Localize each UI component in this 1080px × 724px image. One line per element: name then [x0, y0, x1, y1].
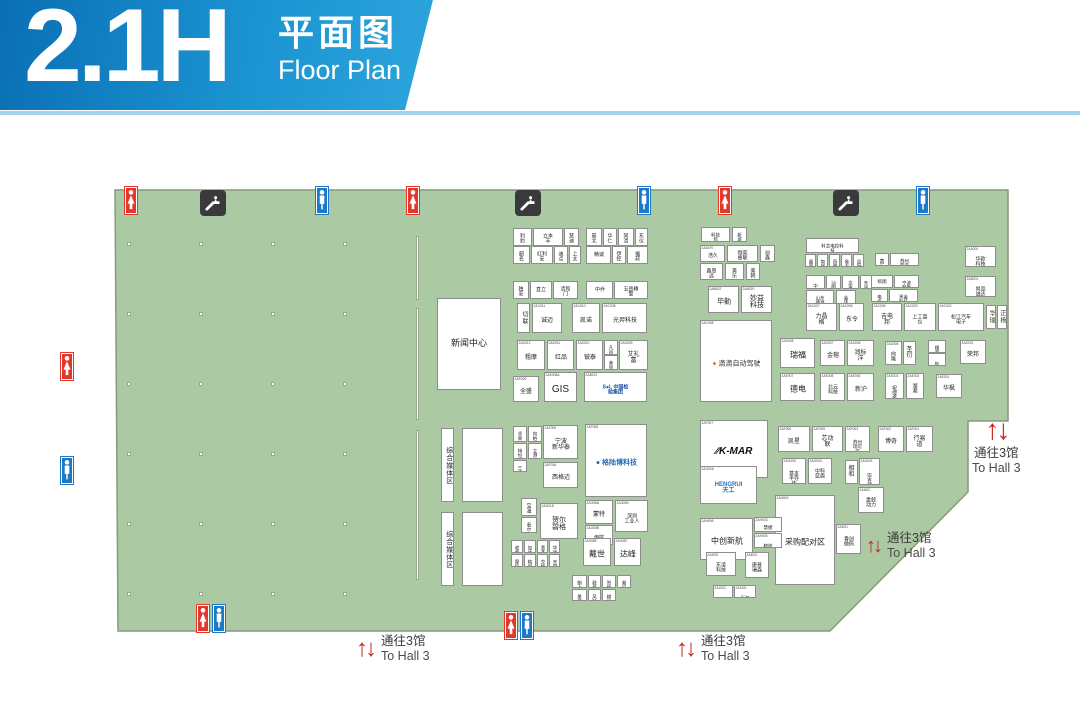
booth-2ae005: 2AE005新沪: [847, 373, 874, 401]
booth-name: 毕勤: [709, 292, 738, 312]
pillar: [127, 312, 131, 316]
booth-code: 2AC008: [603, 304, 627, 307]
booth-name: 光羿科技: [603, 309, 646, 332]
booth-name: 向柏: [529, 427, 541, 442]
booth-code: 2AB001: [966, 277, 982, 280]
booth-name: 懿扬: [589, 576, 600, 588]
booth-name: 诚迈: [533, 309, 561, 332]
booth: 穗邦: [928, 340, 946, 353]
booth-name: 粗摩: [518, 346, 544, 369]
booth: 直立: [530, 281, 552, 299]
booth-name: 穗邦: [929, 341, 945, 353]
booth: 坚果: [513, 426, 527, 442]
booth-code: 2AG006: [701, 467, 731, 470]
booth-name: 湘设: [618, 576, 630, 588]
booth-name: 凯诺: [573, 309, 599, 332]
to-hall-3-sign: ↑↓通往3馆To Hall 3: [866, 531, 936, 561]
booth-name: [463, 513, 502, 585]
booth: 向柏: [528, 426, 542, 442]
booth-2ai003: 2AI003康普 瑞森: [745, 552, 769, 578]
booth-name: 相和: [846, 461, 857, 483]
booth-name: ● 滴滴自动驾驶: [701, 326, 771, 401]
wall-divider: [416, 430, 419, 580]
booth-name: 全盛: [514, 382, 538, 401]
booth-2aj001: 2AJ001迈尔瑞拓: [734, 585, 756, 598]
booth-2ah003: 2AH003慧捷: [754, 517, 782, 532]
booth-2ac007: 2AC007力晶格: [806, 303, 837, 331]
booth-name: 吉电邦: [873, 309, 901, 330]
booth-name: 立港: [529, 444, 541, 459]
booth-code: 2AE001: [937, 375, 950, 378]
to-hall-3-label: 通往3馆To Hall 3: [972, 446, 1021, 476]
booth: 风铃: [588, 589, 601, 601]
booth: 天琴: [549, 554, 560, 567]
booth: 意杰: [537, 540, 548, 553]
pillar: [127, 452, 131, 456]
booth: 墨特: [572, 589, 587, 601]
booth-name: 黑金科技: [890, 290, 917, 302]
booth-name: 康普 瑞森: [746, 558, 768, 578]
booth: 晨北: [586, 228, 602, 246]
booth-name: 红利安: [532, 247, 552, 264]
booth-name: 瑞福: [781, 344, 814, 367]
booth-code: 2AC003: [905, 304, 922, 307]
booth-code: 2AD012: [518, 341, 532, 344]
zone-media-zone-1: 综合媒体区: [441, 428, 454, 502]
booth-code: 2AE008A: [545, 373, 562, 376]
booth-code: 2AB022: [709, 287, 725, 290]
booth-name: 博奇: [879, 432, 903, 451]
booth-name: 航力达: [929, 354, 945, 366]
booth-name: 北云 科技: [821, 379, 844, 400]
booth-name: 交换: [538, 555, 547, 567]
booth-2af006: 2AF006凯星: [778, 426, 810, 452]
womens-restroom-icon: [406, 186, 420, 215]
booth-2ae008: 2AE008北云 科技: [820, 373, 845, 401]
booth: 航力达: [928, 353, 946, 366]
pillar: [127, 382, 131, 386]
booth-code: 2AI002: [859, 488, 872, 491]
booth-name: 恒奕睿联: [728, 246, 757, 262]
booth: 韶名: [513, 246, 530, 264]
womens-restroom-icon: [124, 186, 138, 215]
booth: 缤翔: [871, 275, 893, 288]
booth-name: 置富: [806, 255, 815, 267]
pillar: [343, 312, 347, 316]
booth-name: 综合媒体区: [442, 513, 453, 585]
booth-code: 2AH002: [776, 496, 808, 499]
booth-name: 模派: [603, 590, 615, 601]
booth-name: 宝温: [522, 499, 536, 516]
escalator-icon: [200, 190, 226, 216]
booth: 圣衍: [903, 341, 916, 365]
booth: 电亟: [871, 289, 888, 302]
booth-2af008: 2AF008● 格陆博科技: [585, 424, 647, 497]
booth-2ac005: 2AC005吉电邦: [872, 303, 902, 331]
booth-name: 奥特伦: [714, 591, 732, 598]
booth-name: 中科 蓝盾: [809, 464, 831, 484]
booth-name: 达峰: [615, 544, 640, 565]
booth-2ac011: 2AC011诚迈: [532, 303, 562, 333]
booth: 华闵: [549, 540, 560, 553]
booth: 恒奕睿联: [727, 245, 758, 262]
booth-name: 东令: [840, 309, 863, 330]
booth-2ae007: 2AE007德电: [780, 373, 815, 401]
booth: 智新: [817, 254, 828, 267]
booth-code: 2AF008: [586, 425, 619, 428]
booth-code: 2AB020: [742, 287, 758, 290]
booth: 收葛: [511, 540, 523, 553]
booth: 切联: [517, 303, 530, 333]
booth: 摩校: [511, 554, 523, 567]
booth-code: 2AE005: [848, 374, 862, 377]
booth-name: 迈尔瑞拓: [735, 591, 755, 598]
booth: 福邦: [627, 246, 648, 264]
booth-name: 华仁: [604, 229, 616, 246]
booth-2ad012: 2AD012粗摩: [517, 340, 545, 370]
booth-name: 新城: [733, 228, 746, 242]
booth-name: 天琴: [550, 555, 559, 567]
booth-2ac006: 2AC006东令: [839, 303, 864, 331]
booth-code: 2AD008: [781, 339, 799, 342]
booth-name: 迪点: [555, 247, 567, 264]
booth-2ad006: 2AD006润标洋: [847, 340, 874, 366]
booth-code: 2AF005: [813, 427, 829, 430]
booth-2ag080: 2AG080深圳 工业人: [615, 500, 648, 532]
zone-procurement-matching-zone: 2AH002采购配对区: [775, 495, 835, 585]
booth-name: 东仪: [636, 229, 647, 246]
booth-2ab020: 2AB020妙益 科技: [741, 286, 772, 313]
booth: 黑金科技: [889, 289, 918, 302]
booth: 华仁: [603, 228, 617, 246]
booth-name: 特恒: [514, 444, 526, 459]
booth-name: 松江汽车电子: [939, 309, 983, 330]
booth-name: 意杰: [538, 541, 547, 553]
pillar: [271, 592, 275, 596]
mens-restroom-icon: [916, 186, 930, 215]
booth-code: 2AH085: [584, 539, 598, 542]
pillar: [343, 382, 347, 386]
booth-name: 采购配对区: [776, 501, 834, 584]
pillar: [343, 592, 347, 596]
booth: 鑫思远: [700, 263, 723, 280]
booth-name: 贺扬: [603, 576, 615, 588]
booth-name: 基本 半导体: [783, 464, 805, 484]
booth: 看尔: [521, 517, 537, 533]
booth-code: 2AD009: [620, 341, 635, 344]
pillar: [343, 242, 347, 246]
booth-name: 显时: [854, 255, 863, 267]
booth-name: 电亟: [872, 290, 887, 302]
booth-code: 2AE002: [907, 374, 916, 377]
booth-name: 同清: [619, 229, 633, 246]
booth-2ac003: 2AC003上工富仪: [904, 303, 936, 331]
booth: 山东德源: [806, 290, 834, 304]
booth-2ac008: 2AC008● 滴滴自动驾驶: [700, 320, 772, 402]
booth-2ag005: 2AG005基本 半导体: [782, 458, 806, 484]
booth-code: 2AI005: [707, 553, 722, 556]
booth: 显时: [853, 254, 864, 267]
booth: 贺扬: [602, 575, 616, 588]
booth-code: 2AA070: [701, 246, 714, 249]
booth-code: 2AG08A: [586, 501, 600, 504]
booth: 特恒: [513, 443, 527, 459]
booth: 汕明: [826, 275, 841, 289]
pillar: [127, 242, 131, 246]
booth: 宝温: [521, 498, 537, 516]
booth-2ag018: 2AG018贺尔 碧格: [540, 503, 578, 539]
booth-2ag08a: 2AG08A蒙特: [585, 500, 613, 524]
booth-name: 湖湘: [907, 379, 923, 399]
booth-code: 2AF002: [879, 427, 892, 430]
booth-name: 芯动联: [813, 432, 842, 452]
booth: 加达: [524, 540, 536, 553]
booth-2ad007: 2AD007金榕: [820, 340, 845, 366]
booth-name: 独安: [514, 282, 528, 299]
booth-name: 美乐: [726, 264, 743, 280]
booth-2ah085: 2AH085戴世: [583, 538, 611, 566]
booth: 慧迪: [564, 228, 579, 246]
booth: 上太: [569, 246, 581, 264]
pillar: [343, 522, 347, 526]
pillar: [271, 242, 275, 246]
booth: 清和门: [553, 281, 578, 299]
booth-name: 铍泰: [577, 346, 602, 369]
booth-name: 德电: [781, 379, 814, 400]
booth-name: 摩校: [512, 555, 522, 567]
booth-name: 尚品诚达: [966, 282, 995, 297]
pillar: [127, 592, 131, 596]
booth: 立港: [528, 443, 542, 459]
booth: 美韩: [746, 263, 760, 280]
booth-name: 慧迪: [565, 229, 578, 246]
booth-name: 切联: [518, 304, 529, 332]
booth-name: 美固: [605, 356, 617, 370]
booth: 中慧睿: [806, 275, 825, 289]
pillar: [271, 312, 275, 316]
booth-name: 风铃: [589, 590, 600, 601]
booth-name: 鑫思远: [701, 264, 722, 280]
booth-2ae003: 2AE003祝理金: [885, 373, 904, 399]
up-down-arrows-icon: ↑↓: [676, 637, 694, 661]
booth-name: 金榕: [821, 346, 844, 365]
booth-name: 梅里: [525, 555, 535, 567]
pillar: [271, 522, 275, 526]
booth-code: 2AC006: [840, 304, 853, 307]
booth: 立本丰: [533, 228, 563, 246]
mens-restroom-icon: [212, 604, 226, 633]
booth-name: ● 格陆博科技: [586, 430, 646, 496]
booth-name: 华枫: [937, 380, 961, 397]
booth: 科技邦: [701, 227, 730, 242]
booth-name: 看尔: [522, 518, 536, 533]
booth-name: 东凌科技: [707, 558, 735, 576]
booth-name: 祝理金: [886, 379, 903, 399]
booth-name: 宁波 新华泰: [544, 431, 577, 458]
booth-name: 贺尔 碧格: [541, 509, 577, 538]
booth-code: 2AD005: [886, 342, 894, 345]
booth-2af009: 2AF009宁波 新华泰: [543, 425, 578, 459]
booth-name: 西格迈: [544, 468, 577, 487]
booth: 相和: [845, 460, 858, 484]
zone-media-zone-2: 综合媒体区: [441, 512, 454, 586]
booth-name: 晨北: [587, 229, 601, 246]
booth-name: 象泰: [842, 255, 851, 267]
booth-name: 华瑞: [987, 306, 995, 328]
mens-restroom-icon: [637, 186, 651, 215]
booth-2ai001: 2AI001香创 微码: [836, 524, 861, 554]
to-hall-3-sign: ↑↓通往3馆To Hall 3: [676, 634, 750, 664]
booth-name: 凯星: [779, 432, 809, 451]
booth-2ad008: 2AD008瑞福: [780, 338, 815, 368]
booth: [462, 428, 503, 502]
booth: 精诚: [586, 246, 611, 264]
booth-code: 2AB021: [585, 373, 619, 376]
booth-code: 2AC002: [939, 304, 963, 307]
escalator-icon: [833, 190, 859, 216]
booth: 五岳精警: [614, 281, 648, 299]
to-hall-3-sign: ↑↓通往3馆To Hall 3: [972, 416, 1021, 476]
booth: 置富: [805, 254, 816, 267]
booth-name: 深圳 工业人: [616, 506, 647, 531]
booth: 梅里: [524, 554, 536, 567]
booth-code: 2AC005: [873, 304, 888, 307]
mens-restroom-icon: [520, 611, 534, 640]
mens-restroom-icon: [60, 456, 74, 485]
pillar: [199, 592, 203, 596]
booth-2ad009: 2AD009艾礼富: [619, 340, 648, 370]
booth-name: 华欧科技: [966, 252, 995, 267]
booth-name: 燕麟: [830, 255, 839, 267]
booth-2ad011: 2AD011红品: [547, 340, 574, 370]
booth-name: 宁波智胜: [895, 276, 918, 288]
booth-code: 2AJ001: [735, 586, 746, 589]
booth-code: 2AE008: [821, 374, 834, 377]
pillar: [199, 382, 203, 386]
booth: 宁波智胜: [894, 275, 919, 288]
booth-2af016: 2AF016西格迈: [543, 462, 578, 488]
to-hall-3-sign: ↑↓通往3馆To Hall 3: [356, 634, 430, 664]
booth: 燕麟: [829, 254, 840, 267]
womens-restroom-icon: [718, 186, 732, 215]
booth-code: 2AD001: [961, 341, 974, 344]
booth: 创鑫: [760, 245, 775, 262]
booth-name: 艾礼富: [620, 346, 647, 369]
booth: 苏州宏海: [890, 253, 919, 266]
booth-name: [463, 429, 502, 501]
booth: 湘设: [617, 575, 631, 588]
booth: 金环: [836, 290, 856, 304]
booth-code: 2AF003: [846, 427, 859, 430]
booth-name: 直立: [531, 282, 551, 298]
booth-code: 2AG001: [860, 459, 870, 462]
booth-name: 科芯电控科技: [807, 239, 858, 253]
booth-2ah005: 2AH005精锐特: [754, 533, 782, 548]
booth-code: 2AC007: [807, 304, 823, 307]
booth: 模派: [602, 589, 616, 601]
pillar: [271, 382, 275, 386]
booth-code: 2AC008: [701, 321, 740, 324]
booth-name: 坚果: [514, 427, 526, 442]
booth: 红利安: [531, 246, 553, 264]
booth-name: 上太: [570, 247, 580, 264]
booth-name: 戴世: [584, 544, 610, 565]
booth-name: 智新: [818, 255, 827, 267]
booth: 华瑞: [986, 305, 996, 329]
booth-name: 凡益: [605, 341, 617, 355]
booth-name: 美韩: [747, 264, 759, 280]
booth: 念垂: [842, 275, 859, 289]
booth-name: 立本丰: [534, 229, 562, 246]
booth-2ah087: 2AH087达峰: [614, 538, 641, 566]
booth-code: 2AH003: [755, 518, 769, 521]
booth-code: 2AG005: [783, 459, 795, 462]
booth-2af003: 2AF003苏州 瑞可达: [845, 426, 870, 452]
booth-2af002: 2AF002博奇: [878, 426, 904, 452]
booth: 象泰: [841, 254, 852, 267]
booth-code: 2AD011: [548, 341, 562, 344]
booth-name: 新闻中心: [438, 299, 500, 389]
booth-2ae001: 2AE001华枫: [936, 374, 962, 398]
booth-code: 2AF007: [701, 421, 737, 424]
booth-code: 2AJ002: [714, 586, 724, 589]
booth-name: 墨特: [573, 590, 586, 601]
booth-name: 苏州 瑞可达: [846, 432, 869, 452]
booth-code: 2AC011: [533, 304, 548, 307]
booth-code: 2AG003: [809, 459, 821, 462]
booth-name: 清和门: [554, 282, 577, 299]
booth-name: 韶名: [514, 247, 529, 264]
booth-code: 2AI003: [746, 553, 758, 556]
floor-plan-page: 2.1H 平面图 Floor Plan 新闻中心综合媒体区综合媒体区利豹立本丰慧…: [0, 0, 1080, 724]
booth-code: 2AI001: [837, 525, 850, 528]
booth-2ac010: 2AC010凯诺: [572, 303, 600, 333]
booth-name: 综合媒体区: [442, 429, 453, 501]
booth-name: 缤翔: [872, 276, 892, 287]
booth-name: 上工富仪: [905, 309, 935, 330]
womens-restroom-icon: [196, 604, 210, 633]
booth-code: 2AF009: [544, 426, 562, 429]
zone-news-center: 新闻中心: [437, 298, 501, 390]
booth: 新城: [732, 227, 747, 242]
pillar: [199, 452, 203, 456]
booth-2ae002: 2AE002湖湘: [906, 373, 924, 399]
booth-code: 2AD007: [821, 341, 834, 344]
booth-code: 2AG08B: [586, 526, 600, 529]
booth-name: 收葛: [512, 541, 522, 553]
booth-name: 茜石: [876, 254, 888, 266]
booth-name: 红品: [548, 346, 573, 369]
booth: 独安: [513, 281, 529, 299]
booth-name: 新沪: [848, 379, 873, 400]
booth-name: 福邦: [628, 247, 647, 264]
booth-name: 向隆: [886, 347, 901, 365]
booth-2ag006: 2AG006HENGRUI天工: [700, 466, 757, 504]
booth-name: 汕明: [827, 276, 840, 289]
booth-name: 华闵: [550, 541, 559, 553]
booth-code: 2AC010: [573, 304, 587, 307]
booth-2ae008a: 2AE008AGIS: [544, 372, 577, 402]
pillar: [199, 522, 203, 526]
booth-2ad001: 2AD001荣邦: [960, 340, 986, 364]
booth-name: 创鑫: [761, 246, 774, 262]
booth-2af005: 2AF005芯动联: [812, 426, 843, 452]
booth-2ag001: 2AG001毕克 凯乐: [859, 458, 880, 485]
booth-2aa070: 2AA070浩久: [700, 245, 725, 262]
booth-name: 五岳精警: [615, 282, 647, 299]
booth-code: 2AG080: [616, 501, 633, 504]
booth-name: S●L 中国检验集团: [585, 378, 646, 401]
